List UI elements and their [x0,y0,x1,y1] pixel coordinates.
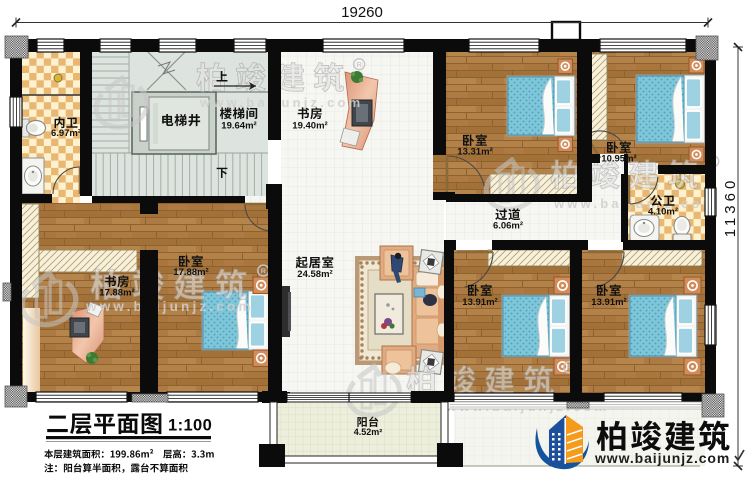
svg-text:13.31m²: 13.31m² [457,147,492,158]
svg-text:1:100: 1:100 [168,417,212,435]
svg-text:24.58m²: 24.58m² [297,269,332,280]
svg-text:11360: 11360 [722,177,739,238]
svg-text:13.91m²: 13.91m² [591,297,626,308]
svg-text:4.10m²: 4.10m² [648,207,678,218]
svg-text:6.97m²: 6.97m² [51,128,81,139]
svg-text:19260: 19260 [341,4,383,21]
svg-text:17.88m²: 17.88m² [99,288,134,299]
svg-text:www.baijunjz.com: www.baijunjz.com [199,95,363,110]
svg-text:19.64m²: 19.64m² [221,121,256,132]
svg-text:6.06m²: 6.06m² [493,221,523,232]
svg-text:19.40m²: 19.40m² [292,121,327,132]
svg-text:4.52m²: 4.52m² [354,427,383,437]
svg-text:10.95m²: 10.95m² [601,154,636,165]
svg-text:www.baijunjz.com: www.baijunjz.com [594,450,730,466]
svg-text:13.91m²: 13.91m² [462,297,497,308]
svg-text:17.88m²: 17.88m² [173,267,208,278]
svg-text:R: R [356,60,362,69]
svg-text:www.baijunjz.com: www.baijunjz.com [85,299,254,314]
svg-text:R: R [261,267,267,276]
